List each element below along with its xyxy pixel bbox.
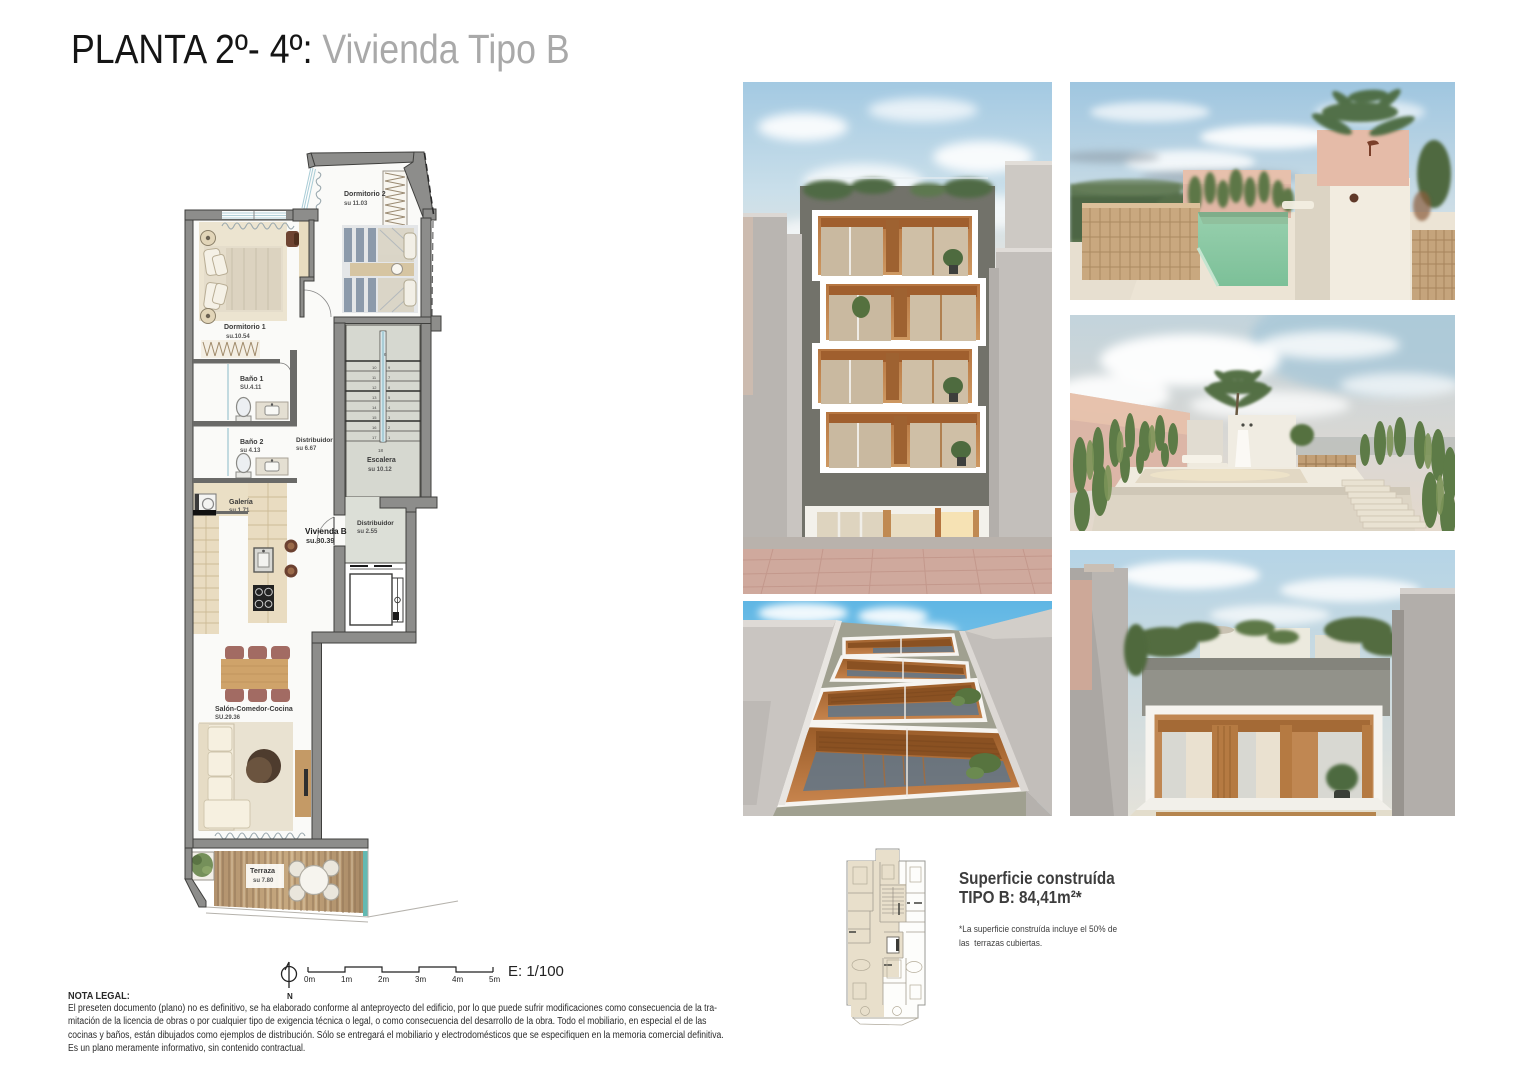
svg-text:Vivienda B: Vivienda B: [305, 527, 347, 536]
svg-text:0m: 0m: [304, 975, 315, 984]
svg-text:16: 16: [372, 425, 377, 430]
svg-text:5m: 5m: [489, 975, 500, 984]
svg-text:Distribuidor: Distribuidor: [296, 437, 333, 444]
svg-text:17: 17: [372, 435, 377, 440]
svg-text:Dormitorio 1: Dormitorio 1: [224, 324, 266, 331]
svg-text:su 2.55: su 2.55: [357, 529, 378, 535]
svg-text:su 11.03: su 11.03: [344, 201, 368, 207]
svg-text:su 10.12: su 10.12: [368, 467, 392, 473]
svg-text:18: 18: [378, 448, 384, 453]
svg-text:13: 13: [372, 395, 377, 400]
svg-text:12: 12: [372, 385, 377, 390]
svg-text:Dormitorio 2: Dormitorio 2: [344, 191, 386, 198]
svg-text:SU.4.11: SU.4.11: [240, 385, 262, 391]
svg-text:4m: 4m: [452, 975, 463, 984]
svg-text:Galería: Galería: [229, 499, 253, 506]
svg-text:1m: 1m: [341, 975, 352, 984]
svg-text:su 6.67: su 6.67: [296, 446, 317, 452]
svg-text:Distribuidor: Distribuidor: [357, 520, 394, 527]
svg-text:Baño 2: Baño 2: [240, 439, 263, 446]
svg-text:su 7.80: su 7.80: [253, 878, 274, 884]
svg-text:Escalera: Escalera: [367, 457, 396, 464]
svg-text:3m: 3m: [415, 975, 426, 984]
svg-text:Baño 1: Baño 1: [240, 376, 263, 383]
svg-text:Terraza: Terraza: [250, 866, 276, 875]
svg-text:SU.29.36: SU.29.36: [215, 715, 241, 721]
svg-text:Salón-Comedor-Cocina: Salón-Comedor-Cocina: [215, 706, 293, 713]
svg-text:2m: 2m: [378, 975, 389, 984]
svg-text:su.80.39: su.80.39: [306, 536, 334, 545]
svg-text:14: 14: [372, 405, 377, 410]
svg-text:15: 15: [372, 415, 377, 420]
svg-text:su.10.54: su.10.54: [226, 334, 250, 340]
svg-text:10: 10: [372, 365, 377, 370]
